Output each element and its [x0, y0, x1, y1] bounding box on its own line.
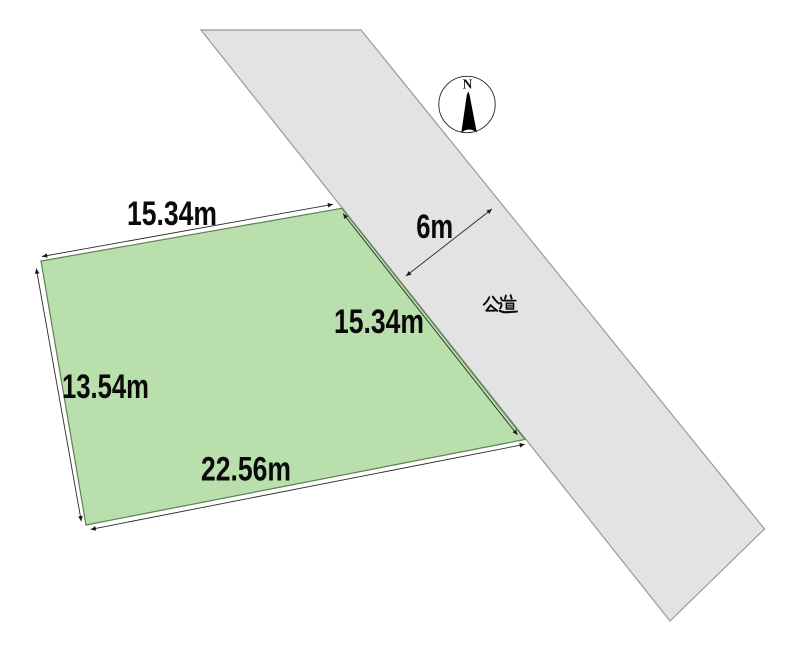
svg-text:N: N: [463, 77, 473, 92]
svg-text:22.56m: 22.56m: [201, 451, 291, 489]
svg-text:15.34m: 15.34m: [127, 195, 217, 233]
svg-text:13.54m: 13.54m: [62, 368, 149, 406]
svg-text:15.34m: 15.34m: [334, 303, 424, 341]
svg-text:6m: 6m: [416, 208, 453, 246]
